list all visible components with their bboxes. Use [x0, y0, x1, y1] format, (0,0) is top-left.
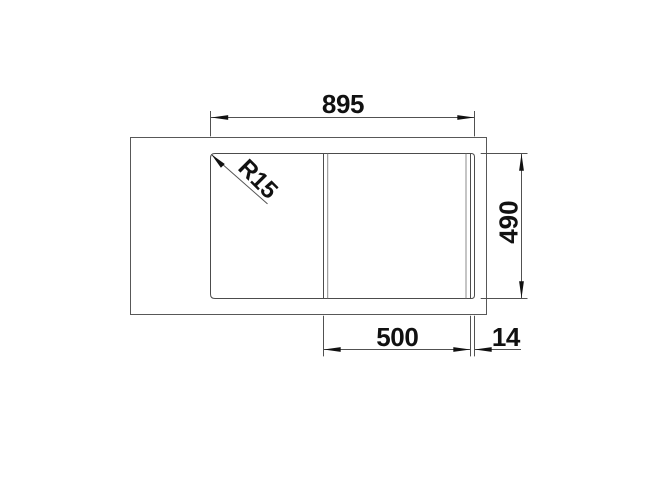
svg-text:14: 14 — [492, 322, 521, 352]
svg-text:895: 895 — [322, 89, 364, 119]
svg-text:R15: R15 — [233, 154, 283, 204]
svg-text:490: 490 — [493, 200, 523, 243]
svg-text:500: 500 — [376, 322, 418, 352]
